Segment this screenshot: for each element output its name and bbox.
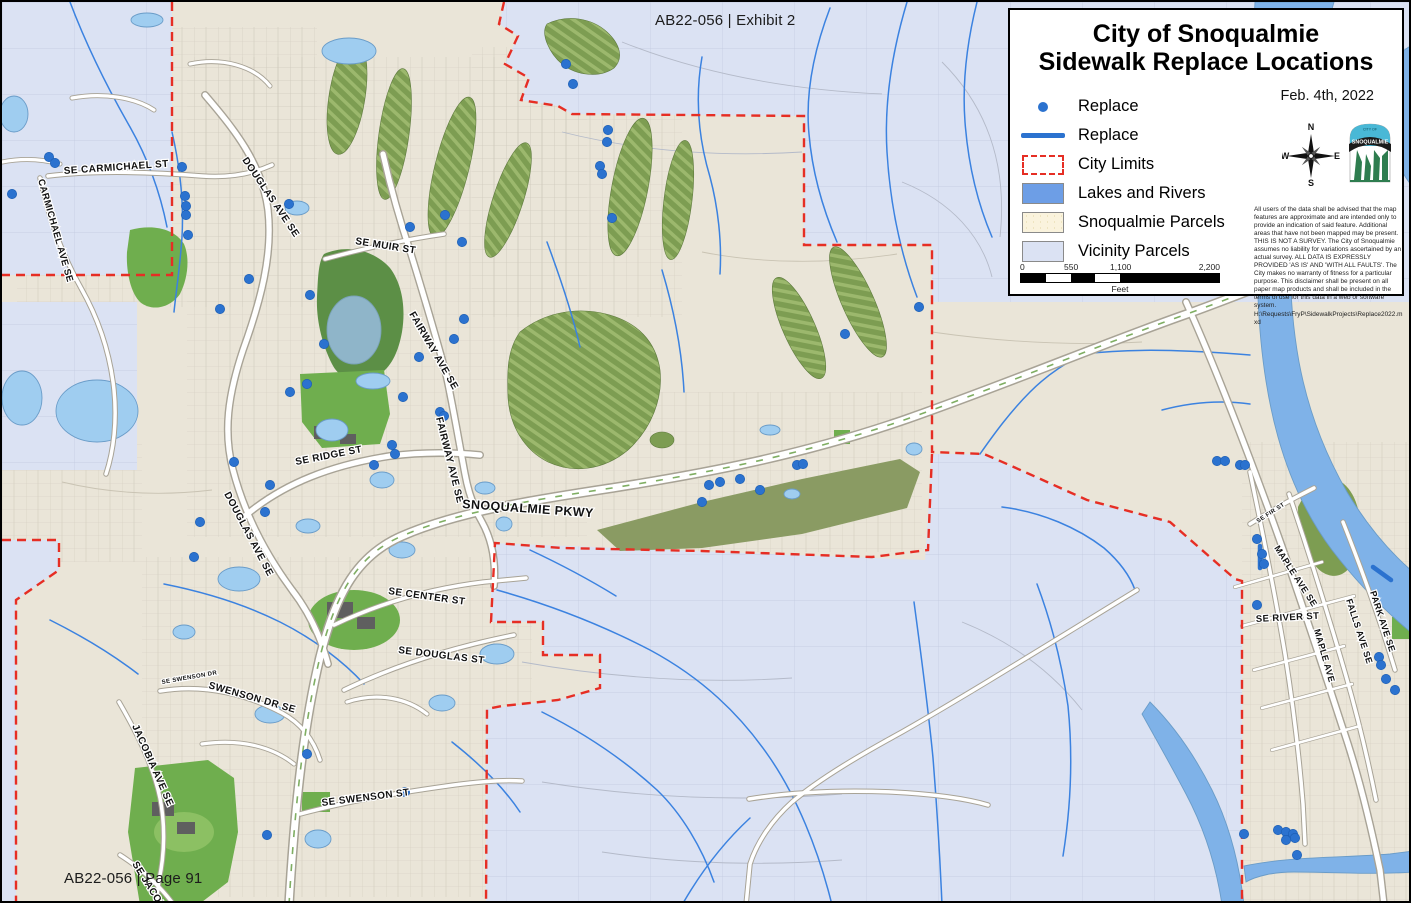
logo-name-label: SNOQUALMIE <box>1352 140 1389 146</box>
replace-point <box>602 137 611 146</box>
replace-point <box>244 274 253 283</box>
replace-point <box>1376 660 1385 669</box>
replace-point <box>181 201 190 210</box>
legend-panel: City of Snoqualmie Sidewalk Replace Loca… <box>1008 8 1404 296</box>
replace-point <box>561 59 570 68</box>
scale-bar: 0 550 1,100 2,200 Feet <box>1020 262 1220 294</box>
replace-point <box>568 79 577 88</box>
replace-point <box>735 474 744 483</box>
compass-east-label: E <box>1334 151 1340 161</box>
city-limits-icon <box>1020 155 1066 175</box>
replace-point <box>369 460 378 469</box>
replace-point <box>449 334 458 343</box>
replace-point <box>319 339 328 348</box>
replace-point <box>1259 559 1268 568</box>
replace-point <box>302 379 311 388</box>
replace-point <box>7 189 16 198</box>
replace-point <box>177 162 186 171</box>
replace-point <box>1381 674 1390 683</box>
replace-point <box>1220 456 1229 465</box>
replace-point <box>260 507 269 516</box>
replace-point <box>704 480 713 489</box>
legend-item-city-limits: City Limits <box>1020 150 1225 179</box>
disclaimer-text: All users of the data shall be advised t… <box>1254 206 1404 310</box>
replace-point <box>840 329 849 338</box>
scale-bar-segments <box>1020 273 1220 283</box>
replace-point <box>755 485 764 494</box>
snoqualmie-logo: CITY OF SNOQUALMIE <box>1346 120 1394 186</box>
map-title-line1: City of Snoqualmie <box>1010 20 1402 48</box>
replace-point <box>183 230 192 239</box>
replace-point <box>262 830 271 839</box>
replace-point <box>414 352 423 361</box>
replace-point <box>607 213 616 222</box>
replace-point <box>1240 460 1249 469</box>
scale-tick-2200: 2,200 <box>1199 262 1220 272</box>
legend-item-lakes: Lakes and Rivers <box>1020 179 1225 208</box>
scale-tick-0: 0 <box>1020 262 1025 272</box>
replace-point <box>387 440 396 449</box>
replace-point <box>50 158 59 167</box>
replace-point <box>914 302 923 311</box>
replace-line-icon <box>1020 133 1066 138</box>
replace-point <box>697 497 706 506</box>
replace-point <box>405 222 414 231</box>
replace-point <box>305 290 314 299</box>
vicinity-parcels-swatch-icon <box>1020 241 1066 262</box>
compass-north-label: N <box>1308 122 1315 132</box>
replace-point <box>597 169 606 178</box>
scale-tick-550: 550 <box>1064 262 1078 272</box>
compass-west-label: W <box>1282 151 1290 161</box>
replace-point <box>229 457 238 466</box>
map-title-line2: Sidewalk Replace Locations <box>1010 48 1402 76</box>
replace-point <box>1239 829 1248 838</box>
legend-item-snoqualmie-parcels: Snoqualmie Parcels <box>1020 208 1225 237</box>
replace-point <box>302 749 311 758</box>
replace-point <box>390 449 399 458</box>
disclaimer-block: All users of the data shall be advised t… <box>1254 206 1404 327</box>
replace-point <box>1252 600 1261 609</box>
replace-point <box>459 314 468 323</box>
legend-item-replace-point: Replace <box>1020 92 1225 121</box>
replace-point <box>1292 850 1301 859</box>
page-label: AB22-056 | Page 91 <box>64 870 202 887</box>
legend-item-replace-line: Replace <box>1020 121 1225 150</box>
replace-point <box>798 459 807 468</box>
replace-point <box>195 517 204 526</box>
exhibit-label: AB22-056 | Exhibit 2 <box>655 12 795 29</box>
replace-point <box>398 392 407 401</box>
mxd-file-path: H:\Requests\FryP\SidewalkProjects\Replac… <box>1254 311 1404 327</box>
replace-point <box>284 199 293 208</box>
legend-items: Replace Replace City Limits Lakes and Ri… <box>1020 92 1225 266</box>
scale-tick-1100: 1,100 <box>1110 262 1131 272</box>
map-title: City of Snoqualmie Sidewalk Replace Loca… <box>1010 20 1402 76</box>
replace-point <box>715 477 724 486</box>
map-date: Feb. 4th, 2022 <box>1280 88 1374 104</box>
replace-point <box>440 210 449 219</box>
scale-unit-label: Feet <box>1020 284 1220 294</box>
replace-point <box>265 480 274 489</box>
compass-south-label: S <box>1308 178 1314 188</box>
replace-point <box>1290 833 1299 842</box>
replace-point <box>457 237 466 246</box>
compass-rose-icon: N E S W <box>1282 122 1340 188</box>
snoqualmie-parcels-swatch-icon <box>1020 212 1066 233</box>
replace-point <box>1252 534 1261 543</box>
replace-point <box>1257 549 1266 558</box>
replace-point <box>189 552 198 561</box>
replace-point <box>181 210 190 219</box>
replace-point <box>215 304 224 313</box>
lakes-swatch-icon <box>1020 183 1066 204</box>
replace-point <box>1390 685 1399 694</box>
replace-point <box>285 387 294 396</box>
replace-point <box>180 191 189 200</box>
replace-point <box>1281 835 1290 844</box>
logo-city-of-label: CITY OF <box>1363 128 1378 132</box>
replace-point-icon <box>1020 102 1066 112</box>
replace-point <box>603 125 612 134</box>
map-page: SE CARMICHAEL STCARMICHAEL AVE SEDOUGLAS… <box>0 0 1411 903</box>
